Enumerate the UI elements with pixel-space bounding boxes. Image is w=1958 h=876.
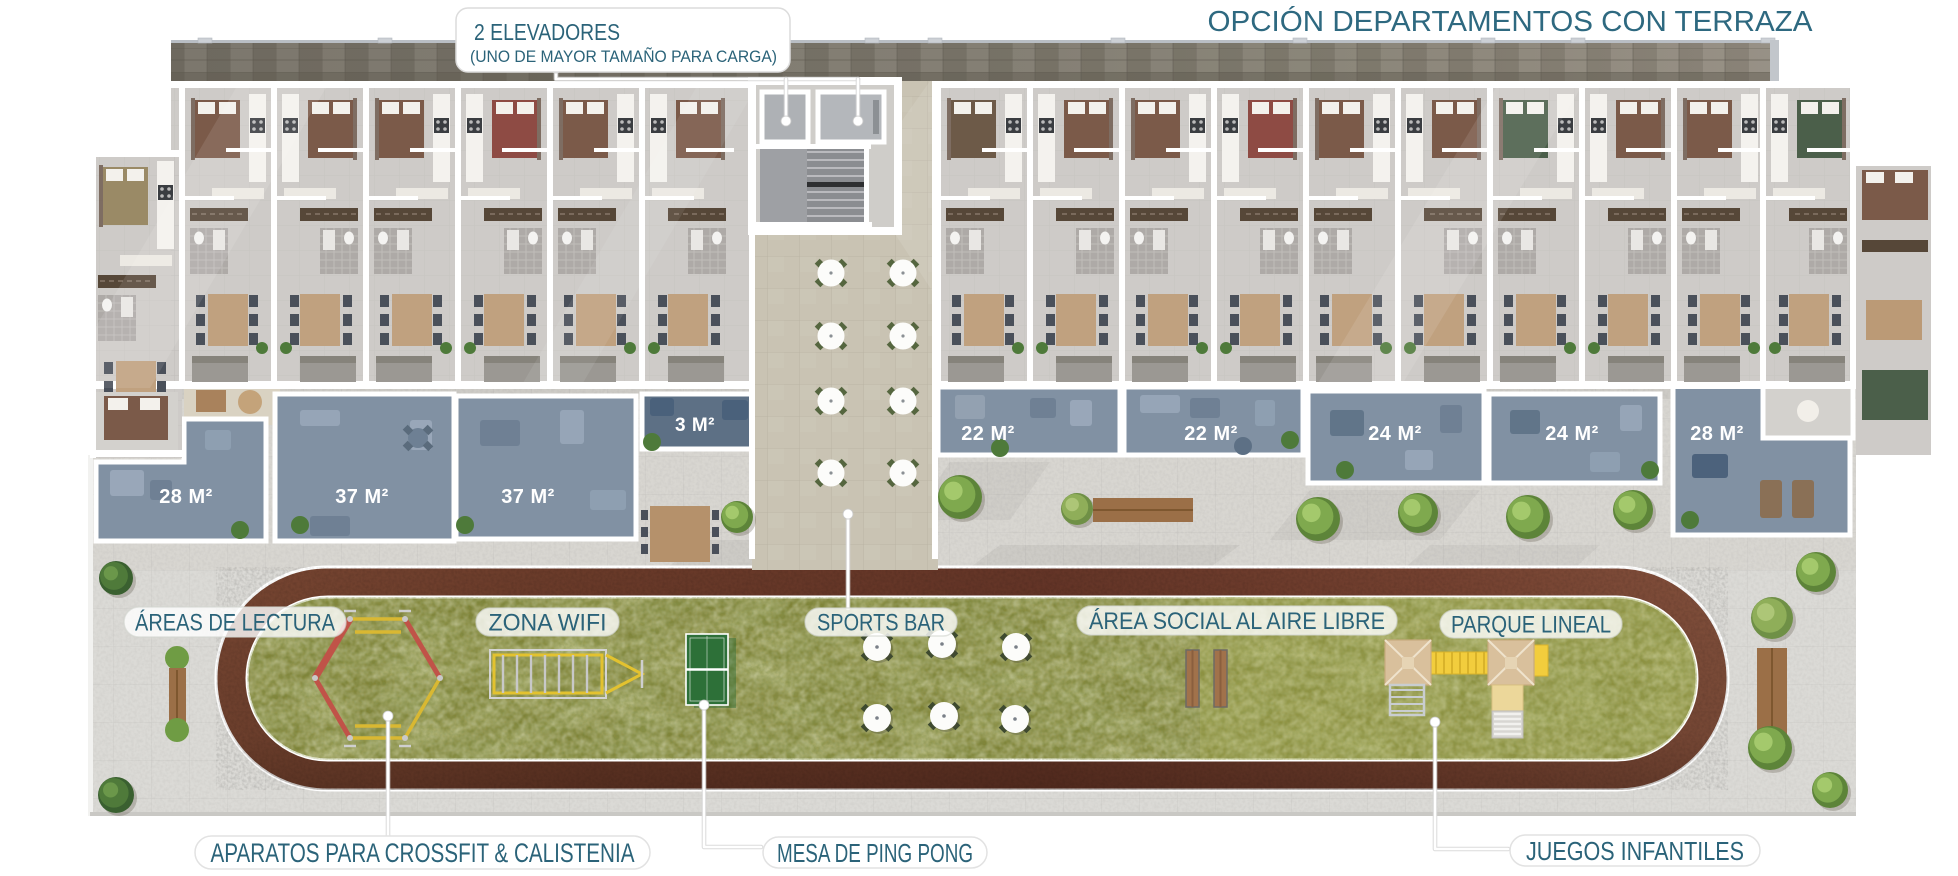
svg-text:ÁREA SOCIAL AL AIRE LIBRE: ÁREA SOCIAL AL AIRE LIBRE [1089, 608, 1385, 635]
svg-text:24 M²: 24 M² [1368, 423, 1422, 445]
svg-text:22 M²: 22 M² [1184, 423, 1238, 445]
svg-text:37 M²: 37 M² [501, 486, 555, 508]
svg-text:28 M²: 28 M² [1690, 423, 1744, 445]
svg-text:APARATOS PARA CROSSFIT & CALIS: APARATOS PARA CROSSFIT & CALISTENIA [211, 838, 635, 868]
svg-text:SPORTS BAR: SPORTS BAR [817, 610, 945, 637]
svg-text:ÁREAS DE LECTURA: ÁREAS DE LECTURA [135, 610, 335, 637]
svg-text:JUEGOS INFANTILES: JUEGOS INFANTILES [1526, 836, 1744, 866]
svg-text:PARQUE LINEAL: PARQUE LINEAL [1451, 612, 1611, 639]
svg-text:(UNO DE MAYOR TAMAÑO PARA CARG: (UNO DE MAYOR TAMAÑO PARA CARGA) [470, 46, 777, 66]
svg-text:2 ELEVADORES: 2 ELEVADORES [474, 19, 620, 45]
svg-text:ZONA WIFI: ZONA WIFI [489, 610, 607, 637]
svg-text:28 M²: 28 M² [159, 486, 213, 508]
svg-text:3 M²: 3 M² [675, 415, 715, 436]
svg-text:37 M²: 37 M² [335, 486, 389, 508]
svg-text:OPCIÓN DEPARTAMENTOS CON TERRA: OPCIÓN DEPARTAMENTOS CON TERRAZA [1208, 5, 1814, 38]
svg-text:MESA DE PING PONG: MESA DE PING PONG [777, 838, 973, 868]
svg-text:22 M²: 22 M² [961, 423, 1015, 445]
svg-text:24 M²: 24 M² [1545, 423, 1599, 445]
